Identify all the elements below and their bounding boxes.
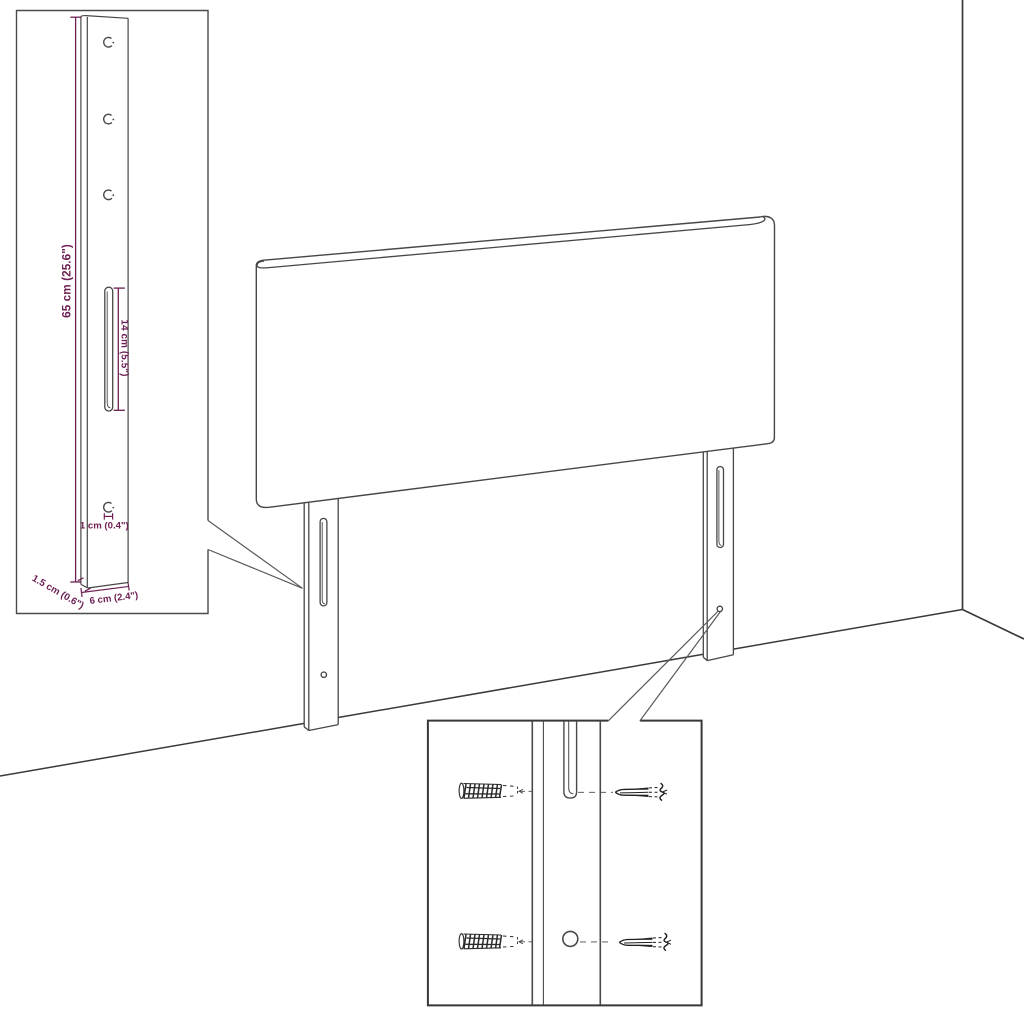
svg-text:1 cm (0.4"): 1 cm (0.4") <box>80 521 129 532</box>
svg-text:65 cm (25.6"): 65 cm (25.6") <box>60 244 73 318</box>
svg-text:14 cm (5.5"): 14 cm (5.5") <box>119 320 130 377</box>
